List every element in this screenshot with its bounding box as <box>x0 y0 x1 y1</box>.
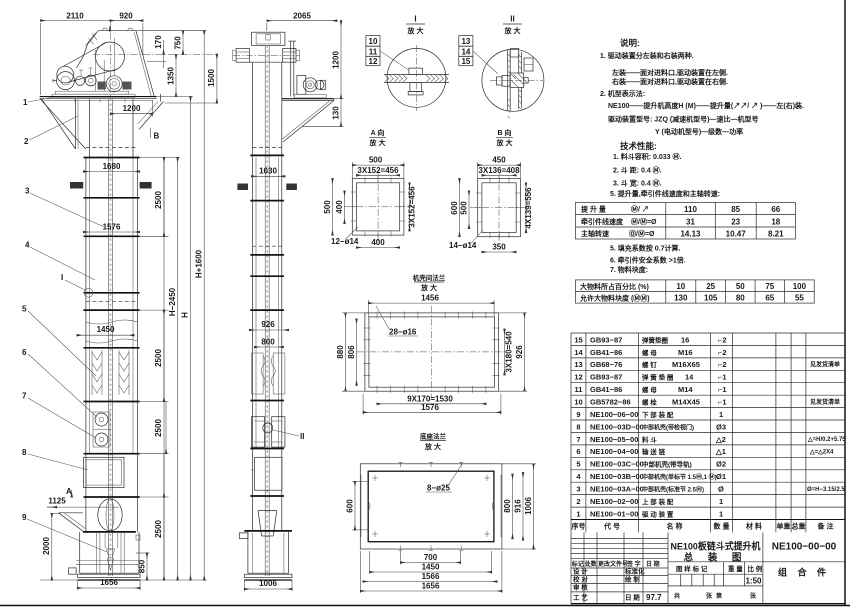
svg-text:序号: 序号 <box>571 522 586 531</box>
svg-text:GB5782−86: GB5782−86 <box>590 398 631 407</box>
svg-text:A: A <box>66 487 72 496</box>
svg-text:12: 12 <box>369 57 378 66</box>
svg-text:螺 母: 螺 母 <box>642 385 657 394</box>
svg-text:M16: M16 <box>678 348 693 357</box>
svg-text:张: 张 <box>706 592 713 600</box>
svg-text:Ⓜ/Ⓜ=Ø: Ⓜ/Ⓜ=Ø <box>631 217 657 226</box>
svg-text:材 料: 材 料 <box>745 522 762 531</box>
svg-text:△=H/0.2+5.75: △=H/0.2+5.75 <box>807 436 846 443</box>
svg-text:18: 18 <box>771 217 780 226</box>
svg-text:工 艺: 工 艺 <box>573 593 588 602</box>
svg-text:7: 7 <box>22 392 27 401</box>
svg-text:驱 动 装 置: 驱 动 装 置 <box>642 509 674 518</box>
svg-text:Ø2: Ø2 <box>716 460 726 469</box>
svg-text:代 号: 代 号 <box>603 522 620 531</box>
svg-text:2110: 2110 <box>66 12 84 21</box>
svg-text:12: 12 <box>574 373 582 382</box>
svg-text:2500: 2500 <box>154 520 163 538</box>
svg-text:中部机壳(标准节 2.5Ⓜ): 中部机壳(标准节 2.5Ⓜ) <box>642 486 704 494</box>
svg-text:组 合 件: 组 合 件 <box>778 567 830 578</box>
svg-text:GB93−87: GB93−87 <box>590 335 622 344</box>
svg-text:6. 牵引件安全系数 >1倍.: 6. 牵引件安全系数 >1倍. <box>610 255 686 264</box>
svg-text:螺 栓: 螺 栓 <box>642 398 657 407</box>
svg-text:中部机壳(带检视门): 中部机壳(带检视门) <box>642 423 694 431</box>
svg-text:NE100−01−00: NE100−01−00 <box>590 509 638 518</box>
svg-text:机壳间法兰: 机壳间法兰 <box>413 273 446 282</box>
svg-text:16: 16 <box>681 335 689 344</box>
svg-text:5. 填充系数按 0.7计算.: 5. 填充系数按 0.7计算. <box>610 244 680 253</box>
svg-text:Ⓞ/Ⓜ=Ø: Ⓞ/Ⓜ=Ø <box>629 229 655 238</box>
svg-text:500: 500 <box>369 156 383 165</box>
svg-text:1: 1 <box>719 497 723 506</box>
svg-text:张: 张 <box>750 592 757 600</box>
svg-text:6: 6 <box>22 348 27 357</box>
svg-text:1576: 1576 <box>103 223 121 232</box>
svg-text:更改文件号: 更改文件号 <box>598 560 628 568</box>
svg-text:放 大: 放 大 <box>424 442 441 451</box>
svg-text:1200: 1200 <box>331 51 340 69</box>
svg-text:926: 926 <box>515 345 524 359</box>
svg-text:M16X65: M16X65 <box>672 360 700 369</box>
svg-text:牵引件线速度: 牵引件线速度 <box>581 217 624 226</box>
svg-text:M14: M14 <box>678 385 693 394</box>
svg-text:日 期: 日 期 <box>625 593 640 602</box>
svg-text:1200: 1200 <box>123 104 141 113</box>
svg-text:放 大: 放 大 <box>504 26 521 35</box>
svg-text:B 向: B 向 <box>498 128 512 137</box>
svg-text:驱动装置型号: JZQ (减速机型号)—速比—机型号: 驱动装置型号: JZQ (减速机型号)—速比—机型号 <box>608 115 759 124</box>
svg-text:130: 130 <box>674 294 688 303</box>
svg-text:处数: 处数 <box>584 560 598 568</box>
svg-text:NE100−05−00: NE100−05−00 <box>590 435 638 444</box>
svg-text:600: 600 <box>450 201 459 215</box>
svg-text:Ⓜ/ ↗: Ⓜ/ ↗ <box>631 205 649 214</box>
svg-text:5: 5 <box>22 305 27 314</box>
svg-text:400: 400 <box>335 200 344 214</box>
svg-text:上 部 装 配: 上 部 装 配 <box>642 497 674 506</box>
svg-text:1. 驱动装置分左装和右装两种.: 1. 驱动装置分左装和右装两种. <box>600 51 694 60</box>
svg-text:Ø1: Ø1 <box>716 472 726 481</box>
svg-text:12−ø14: 12−ø14 <box>331 237 359 246</box>
svg-text:H+1600: H+1600 <box>194 249 203 278</box>
svg-text:II: II <box>300 432 304 441</box>
svg-text:1500: 1500 <box>207 69 216 87</box>
svg-text:3: 3 <box>576 485 580 494</box>
svg-text:1566: 1566 <box>422 572 440 581</box>
svg-text:105: 105 <box>704 294 718 303</box>
svg-text:⌐2: ⌐2 <box>718 348 727 357</box>
svg-text:1030: 1030 <box>259 167 277 176</box>
svg-text:II: II <box>510 15 514 24</box>
svg-text:放 大: 放 大 <box>420 283 437 292</box>
svg-text:GB41−86: GB41−86 <box>590 385 622 394</box>
svg-text:4: 4 <box>25 241 30 250</box>
svg-text:3. 斗 宽: 0.4 Ⓜ.: 3. 斗 宽: 0.4 Ⓜ. <box>613 179 662 188</box>
svg-text:14: 14 <box>461 47 470 56</box>
svg-text:NE100−00−00: NE100−00−00 <box>772 542 837 553</box>
svg-text:放 大: 放 大 <box>369 138 386 147</box>
svg-text:见发货清单: 见发货清单 <box>810 398 840 406</box>
svg-text:75: 75 <box>765 282 774 291</box>
svg-text:6: 6 <box>576 447 580 456</box>
svg-text:H−2450: H−2450 <box>168 287 177 316</box>
svg-text:标记: 标记 <box>571 560 584 568</box>
svg-text:2000: 2000 <box>42 537 51 555</box>
svg-text:第: 第 <box>715 592 722 600</box>
svg-text:大物料所占百分比 (%): 大物料所占百分比 (%) <box>580 282 649 291</box>
svg-text:NE100−06−00: NE100−06−00 <box>590 410 638 419</box>
svg-text:600: 600 <box>346 499 355 513</box>
svg-text:7. 物料块度:: 7. 物料块度: <box>610 265 648 274</box>
svg-text:NE100−03C−00: NE100−03C−00 <box>590 460 644 469</box>
svg-text:主轴转速: 主轴转速 <box>581 229 609 238</box>
svg-text:7: 7 <box>576 435 580 444</box>
svg-text:11: 11 <box>575 385 583 394</box>
svg-text:800: 800 <box>261 338 275 347</box>
svg-text:130: 130 <box>331 106 340 120</box>
svg-text:850: 850 <box>138 559 147 573</box>
svg-text:重 量: 重 量 <box>728 564 743 573</box>
svg-text:55: 55 <box>795 294 804 303</box>
svg-text:10: 10 <box>369 37 378 46</box>
svg-text:3X152=456: 3X152=456 <box>408 186 417 228</box>
svg-text:GB93−87: GB93−87 <box>590 373 622 382</box>
svg-text:NE100−04−00: NE100−04−00 <box>590 447 638 456</box>
svg-text:名 称: 名 称 <box>667 522 683 531</box>
svg-text:800: 800 <box>503 499 512 513</box>
svg-text:校 对: 校 对 <box>573 574 588 583</box>
svg-text:弹簧垫圈: 弹簧垫圈 <box>642 335 669 344</box>
svg-text:Ø: Ø <box>718 485 724 494</box>
svg-text:65: 65 <box>765 294 774 303</box>
svg-text:△1: △1 <box>715 447 726 456</box>
svg-text:31: 31 <box>686 217 695 226</box>
svg-text:M14X45: M14X45 <box>672 398 700 407</box>
svg-text:⌐2: ⌐2 <box>718 335 727 344</box>
svg-text:66: 66 <box>771 205 780 214</box>
svg-text:数 量: 数 量 <box>714 522 730 531</box>
svg-text:2: 2 <box>24 137 29 146</box>
svg-text:350: 350 <box>492 243 506 252</box>
svg-text:放 大: 放 大 <box>496 138 513 147</box>
svg-text:I: I <box>61 273 63 282</box>
svg-text:Y (电动机型号)—级数—功率: Y (电动机型号)—级数—功率 <box>655 127 743 136</box>
svg-text:80: 80 <box>736 294 745 303</box>
svg-text:输 送 链: 输 送 链 <box>642 447 666 456</box>
svg-text:3X136=408: 3X136=408 <box>478 166 520 175</box>
svg-text:3: 3 <box>25 187 30 196</box>
svg-text:2: 2 <box>576 497 580 506</box>
svg-text:NE100−03D−00: NE100−03D−00 <box>590 422 644 431</box>
svg-text:8.21: 8.21 <box>768 229 784 238</box>
svg-text:螺 母: 螺 母 <box>642 348 657 357</box>
svg-text:11: 11 <box>369 47 378 56</box>
svg-text:1450: 1450 <box>97 325 115 334</box>
svg-text:450: 450 <box>492 156 506 165</box>
svg-text:110: 110 <box>684 205 697 214</box>
svg-text:1:50: 1:50 <box>745 576 762 585</box>
svg-text:A 向: A 向 <box>371 128 385 137</box>
svg-text:500: 500 <box>323 200 332 214</box>
svg-text:⌐1: ⌐1 <box>718 385 727 394</box>
svg-text:2. 斗 距: 0.4 Ⓜ.: 2. 斗 距: 0.4 Ⓜ. <box>613 166 662 175</box>
svg-text:9X170=1530: 9X170=1530 <box>407 395 453 404</box>
svg-text:绘 制: 绘 制 <box>625 574 640 583</box>
svg-text:15: 15 <box>461 57 470 66</box>
svg-text:14: 14 <box>685 373 694 382</box>
svg-text:NE100板链斗式提升机: NE100板链斗式提升机 <box>671 541 761 553</box>
svg-text:标准化: 标准化 <box>624 566 645 575</box>
svg-text:14: 14 <box>574 348 583 357</box>
svg-text:1350: 1350 <box>166 67 175 85</box>
svg-text:2500: 2500 <box>154 349 163 367</box>
svg-text:25: 25 <box>706 282 715 291</box>
svg-text:1. 料斗容积: 0.033 Ⓜ.: 1. 料斗容积: 0.033 Ⓜ. <box>613 152 682 161</box>
svg-text:料 斗: 料 斗 <box>642 435 657 444</box>
svg-text:8: 8 <box>576 422 580 431</box>
svg-text:NE100——提升机高度H (M)——提升量(↗↗/ ↗ ): NE100——提升机高度H (M)——提升量(↗↗/ ↗ )——左(右)装. <box>608 101 804 110</box>
svg-text:1: 1 <box>719 410 723 419</box>
svg-text:日 期: 日 期 <box>646 560 660 568</box>
svg-text:技术性能:: 技术性能: <box>620 141 657 151</box>
svg-text:100: 100 <box>793 282 807 291</box>
svg-text:1450: 1450 <box>422 562 440 571</box>
svg-text:底座法兰: 底座法兰 <box>420 432 447 441</box>
svg-text:23: 23 <box>731 217 740 226</box>
svg-text:1: 1 <box>23 98 28 107</box>
svg-text:2500: 2500 <box>154 191 163 209</box>
svg-text:1576: 1576 <box>421 403 439 412</box>
svg-text:比 例: 比 例 <box>748 564 763 573</box>
svg-text:中部机壳(带导轨): 中部机壳(带导轨) <box>642 460 692 469</box>
svg-text:2500: 2500 <box>154 419 163 437</box>
svg-text:允许大物料块度 (ⓂⓂ): 允许大物料块度 (ⓂⓂ) <box>579 293 650 302</box>
svg-text:⌐2: ⌐2 <box>718 360 727 369</box>
svg-text:9: 9 <box>576 410 580 419</box>
svg-text:图 样 标 记: 图 样 标 记 <box>676 564 708 573</box>
svg-text:1006: 1006 <box>524 497 533 515</box>
svg-text:NE100−03B−00: NE100−03B−00 <box>590 472 644 481</box>
svg-text:螺 钉: 螺 钉 <box>642 360 657 369</box>
svg-text:备 注: 备 注 <box>817 522 834 531</box>
svg-text:⌐1: ⌐1 <box>718 373 727 382</box>
svg-text:13: 13 <box>574 360 582 369</box>
svg-text:15: 15 <box>574 335 582 344</box>
svg-text:下 部 装 配: 下 部 装 配 <box>642 410 674 419</box>
svg-text:700: 700 <box>424 553 438 562</box>
svg-text:1: 1 <box>719 509 723 518</box>
svg-text:14−ø14: 14−ø14 <box>449 241 477 250</box>
svg-text:NE100−02−00: NE100−02−00 <box>590 497 638 506</box>
svg-text:单重: 单重 <box>777 522 791 531</box>
svg-text:说明:: 说明: <box>620 38 640 48</box>
svg-text:5. 提升量,牵引件线速度和主轴转速:: 5. 提升量,牵引件线速度和主轴转速: <box>610 189 720 198</box>
svg-text:1125: 1125 <box>48 497 66 506</box>
svg-text:中部机壳(单标节 1.5Ⓜ,1 Ⓜ): 中部机壳(单标节 1.5Ⓜ,1 Ⓜ) <box>642 473 717 481</box>
svg-text:GB68−76: GB68−76 <box>590 360 622 369</box>
svg-text:28−ø16: 28−ø16 <box>389 328 417 337</box>
svg-text:1656: 1656 <box>100 578 118 587</box>
svg-text:弹 簧 垫 圈: 弹 簧 垫 圈 <box>642 373 674 382</box>
svg-text:4X139=556: 4X139=556 <box>524 187 533 229</box>
svg-text:总重: 总重 <box>792 522 806 531</box>
svg-text:Ø=H−3.15/2.5: Ø=H−3.15/2.5 <box>807 487 845 493</box>
svg-text:B: B <box>154 132 160 141</box>
svg-text:NE100−03A−00: NE100−03A−00 <box>590 485 644 494</box>
svg-text:750: 750 <box>173 36 182 50</box>
svg-text:1656: 1656 <box>422 581 440 590</box>
svg-text:806: 806 <box>347 345 356 359</box>
svg-text:170: 170 <box>154 35 163 49</box>
svg-text:I: I <box>414 15 416 24</box>
svg-text:9: 9 <box>22 513 27 522</box>
svg-text:⌐1: ⌐1 <box>718 398 727 407</box>
svg-text:Ø3: Ø3 <box>716 422 726 431</box>
svg-text:10.47: 10.47 <box>726 229 747 238</box>
svg-text:左装——面对进料口,驱动装置在左侧.: 左装——面对进料口,驱动装置在左侧. <box>611 68 728 77</box>
svg-text:1680: 1680 <box>103 162 121 171</box>
svg-text:签 字: 签 字 <box>626 560 641 568</box>
svg-text:△=△2X4: △=△2X4 <box>809 449 834 456</box>
svg-text:926: 926 <box>261 320 275 329</box>
svg-text:13: 13 <box>461 37 470 46</box>
svg-text:放 大: 放 大 <box>407 26 424 35</box>
svg-text:2. 机型表示法:: 2. 机型表示法: <box>600 89 645 98</box>
svg-text:920: 920 <box>119 12 133 21</box>
svg-text:2065: 2065 <box>293 12 311 21</box>
svg-text:1006: 1006 <box>259 579 277 588</box>
svg-text:14.13: 14.13 <box>680 229 701 238</box>
svg-text:400: 400 <box>371 238 385 247</box>
svg-text:8: 8 <box>22 448 27 457</box>
svg-text:3X180=540: 3X180=540 <box>505 331 514 373</box>
svg-text:85: 85 <box>731 205 740 214</box>
svg-text:提 升 量: 提 升 量 <box>580 205 606 214</box>
svg-text:1: 1 <box>576 509 580 518</box>
svg-text:880: 880 <box>336 345 345 359</box>
svg-text:8−ø25: 8−ø25 <box>427 484 450 493</box>
svg-text:H: H <box>181 312 190 318</box>
svg-text:右装——面对进料口,驱动装置在右侧.: 右装——面对进料口,驱动装置在右侧. <box>611 77 728 86</box>
svg-text:5: 5 <box>576 460 580 469</box>
svg-text:916: 916 <box>514 499 523 513</box>
svg-text:总 装 图: 总 装 图 <box>684 552 748 564</box>
svg-text:共: 共 <box>674 592 680 600</box>
svg-text:审 核: 审 核 <box>573 583 588 592</box>
svg-text:10: 10 <box>574 398 582 407</box>
svg-text:500: 500 <box>460 201 469 215</box>
svg-text:△2: △2 <box>715 435 726 444</box>
svg-text:见发货清单: 见发货清单 <box>810 361 840 369</box>
svg-text:10: 10 <box>676 282 685 291</box>
svg-text:GB41−86: GB41−86 <box>590 348 622 357</box>
svg-text:1456: 1456 <box>421 293 439 302</box>
svg-text:97.7: 97.7 <box>646 593 662 602</box>
svg-text:50: 50 <box>736 282 745 291</box>
svg-text:设 计: 设 计 <box>573 566 588 575</box>
